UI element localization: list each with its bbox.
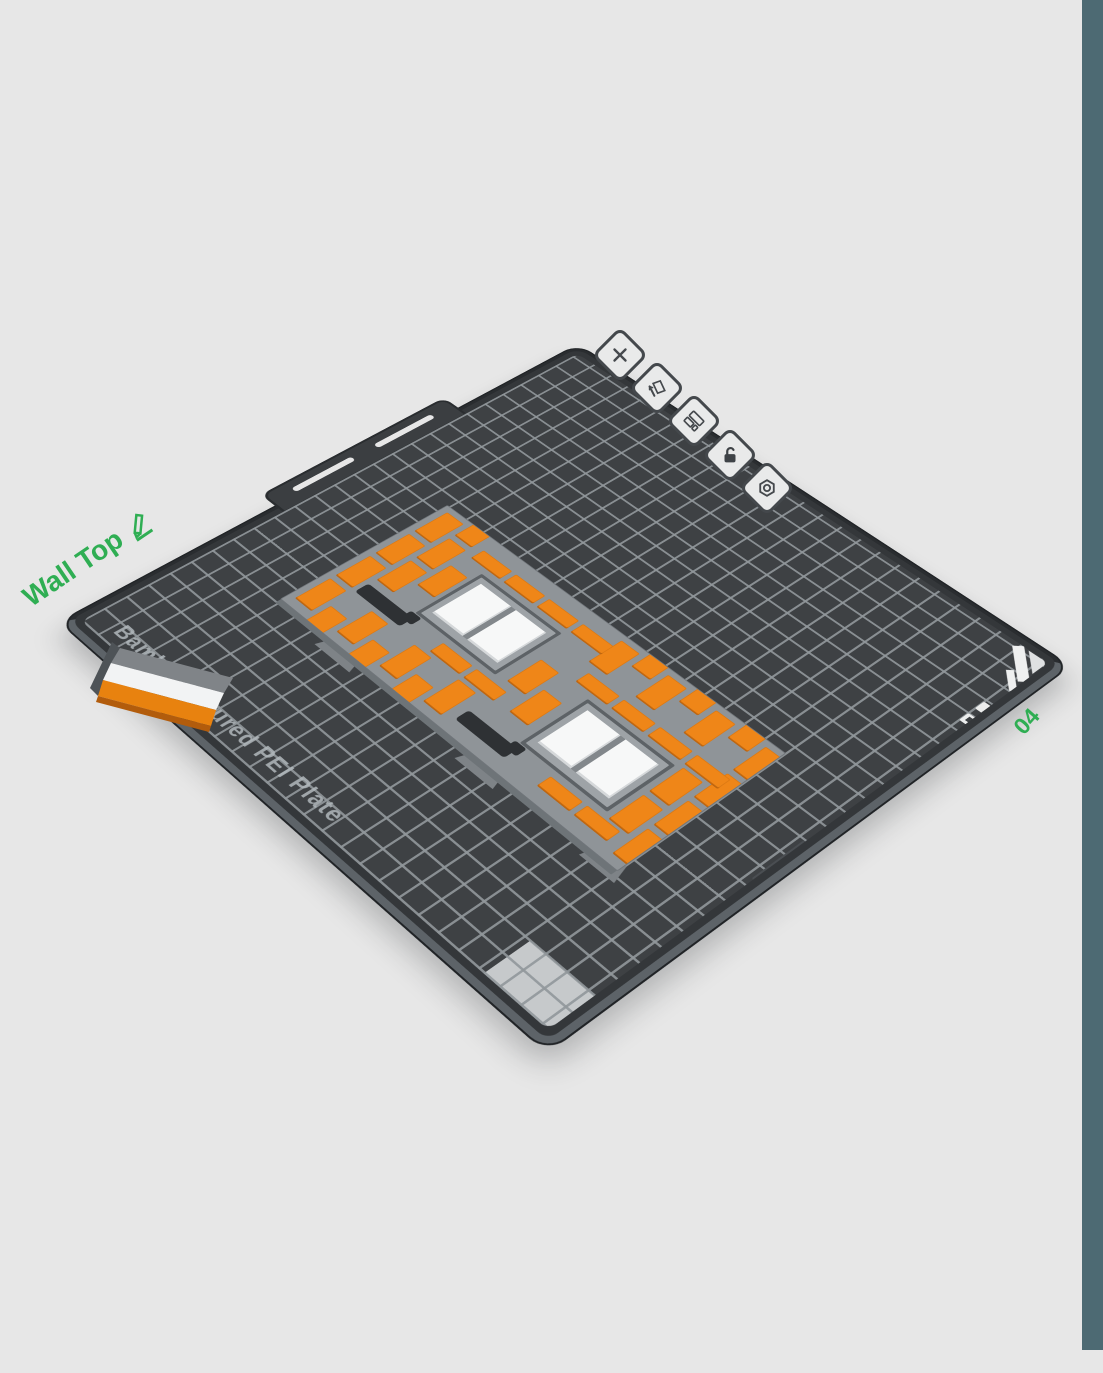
lock-icon bbox=[719, 444, 741, 466]
brick bbox=[683, 710, 736, 747]
slicer-viewport: { "app": { "background": "#e7e7e7", "acc… bbox=[0, 0, 1103, 1350]
brick bbox=[570, 624, 613, 655]
build-plate[interactable]: PEI (HB) · 28 T13 bbox=[61, 345, 1070, 1051]
brick bbox=[507, 659, 559, 694]
close-icon bbox=[609, 344, 631, 366]
brick bbox=[635, 675, 687, 711]
side-panel-edge bbox=[1082, 0, 1103, 1350]
brick bbox=[416, 538, 466, 570]
window-2 bbox=[520, 699, 676, 812]
qr-code-icon bbox=[743, 885, 754, 893]
qr-code-icon bbox=[733, 893, 744, 901]
viewport-3d-scene: PEI (HB) · 28 T13 bbox=[0, 0, 1103, 1373]
plate-grid-surface: PEI (HB) · 28 T13 bbox=[81, 354, 1049, 1030]
gear-icon bbox=[756, 477, 778, 499]
brick bbox=[471, 550, 512, 579]
brick bbox=[575, 673, 619, 705]
brick bbox=[377, 560, 428, 592]
